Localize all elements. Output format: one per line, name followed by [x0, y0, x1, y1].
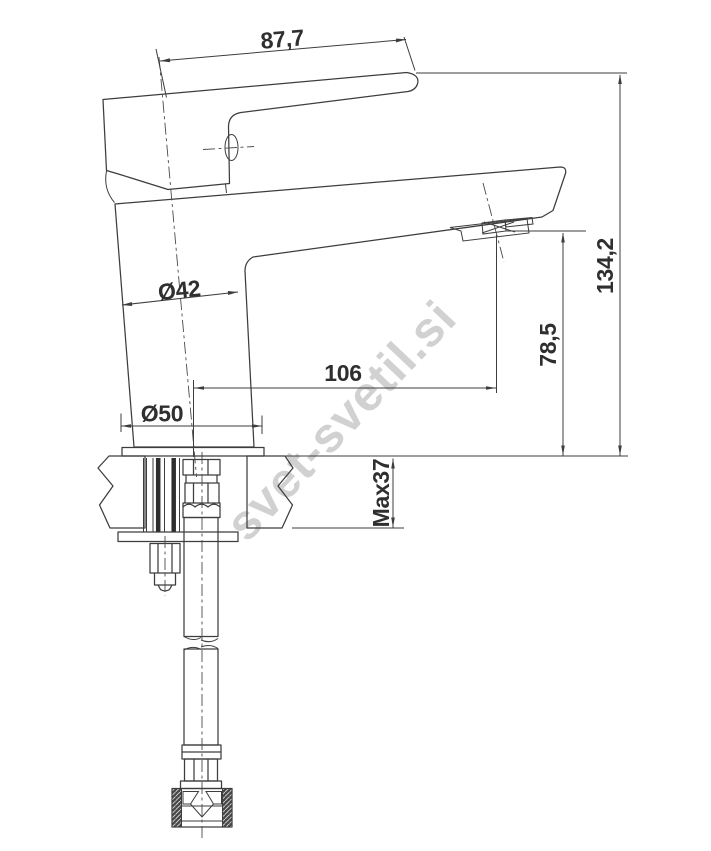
- dim-spout-outlet-height-label: 78,5: [535, 323, 561, 367]
- dimension-body-diameter: Ø42: [122, 275, 238, 306]
- hose-end-collar: [181, 781, 222, 789]
- hose-braid-upper: [184, 518, 218, 637]
- dim-handle-projection-label: 87,7: [259, 24, 305, 54]
- arrowhead: [561, 446, 565, 456]
- dim-base-diameter-label: Ø50: [141, 401, 184, 427]
- lever-outline: [103, 73, 418, 190]
- hose-end-ferrule: [182, 745, 221, 759]
- dim-body-diameter-label: Ø42: [157, 275, 202, 305]
- dimension-spout-reach: 106: [194, 360, 496, 390]
- washer-plate: [118, 532, 238, 542]
- dim-overall-height-label: 134,2: [592, 238, 618, 294]
- dimension-handle-projection: 87,7: [160, 24, 406, 62]
- arrowhead: [618, 446, 622, 456]
- cartridge-cap-edge: [226, 185, 227, 194]
- watermark-text: svet-svetil.si: [216, 291, 467, 552]
- arrowhead: [618, 74, 622, 84]
- threaded-stud: [158, 458, 174, 532]
- dimension-max-mounting-thickness: Max37: [368, 459, 395, 528]
- handle-lever: [103, 73, 418, 190]
- faucet-dimension-diagram: svet-svetil.si: [0, 0, 711, 851]
- dimension-spout-outlet-height: 78,5: [535, 233, 565, 456]
- arrowhead: [194, 386, 204, 390]
- arrowhead: [228, 291, 238, 295]
- counter-left-block: [98, 456, 145, 528]
- hose-top-fitting: [183, 460, 220, 518]
- connection-nut-knurl-left: [172, 789, 182, 828]
- dim-spout-reach-label: 106: [324, 360, 361, 386]
- mounting-hardware: [118, 458, 238, 596]
- arrowhead: [121, 424, 131, 428]
- aerator: [450, 218, 533, 242]
- arrowhead: [252, 424, 262, 428]
- arrowhead: [486, 386, 496, 390]
- hose-break-cut: [184, 637, 218, 651]
- arrowhead: [561, 233, 565, 243]
- hose-braid-lower: [184, 649, 218, 745]
- arrowhead: [160, 58, 170, 62]
- connection-nut-knurl-right: [223, 789, 233, 828]
- aerator-insert: [482, 218, 533, 235]
- dim-max-mounting-thickness-label: Max37: [368, 459, 394, 528]
- technical-drawing-page: svet-svetil.si: [0, 0, 711, 851]
- hose-end-hex: [185, 759, 218, 781]
- dimension-overall-height: 134,2: [592, 74, 622, 456]
- watermark: svet-svetil.si: [216, 291, 467, 552]
- neck-fillet-arc: [106, 171, 115, 203]
